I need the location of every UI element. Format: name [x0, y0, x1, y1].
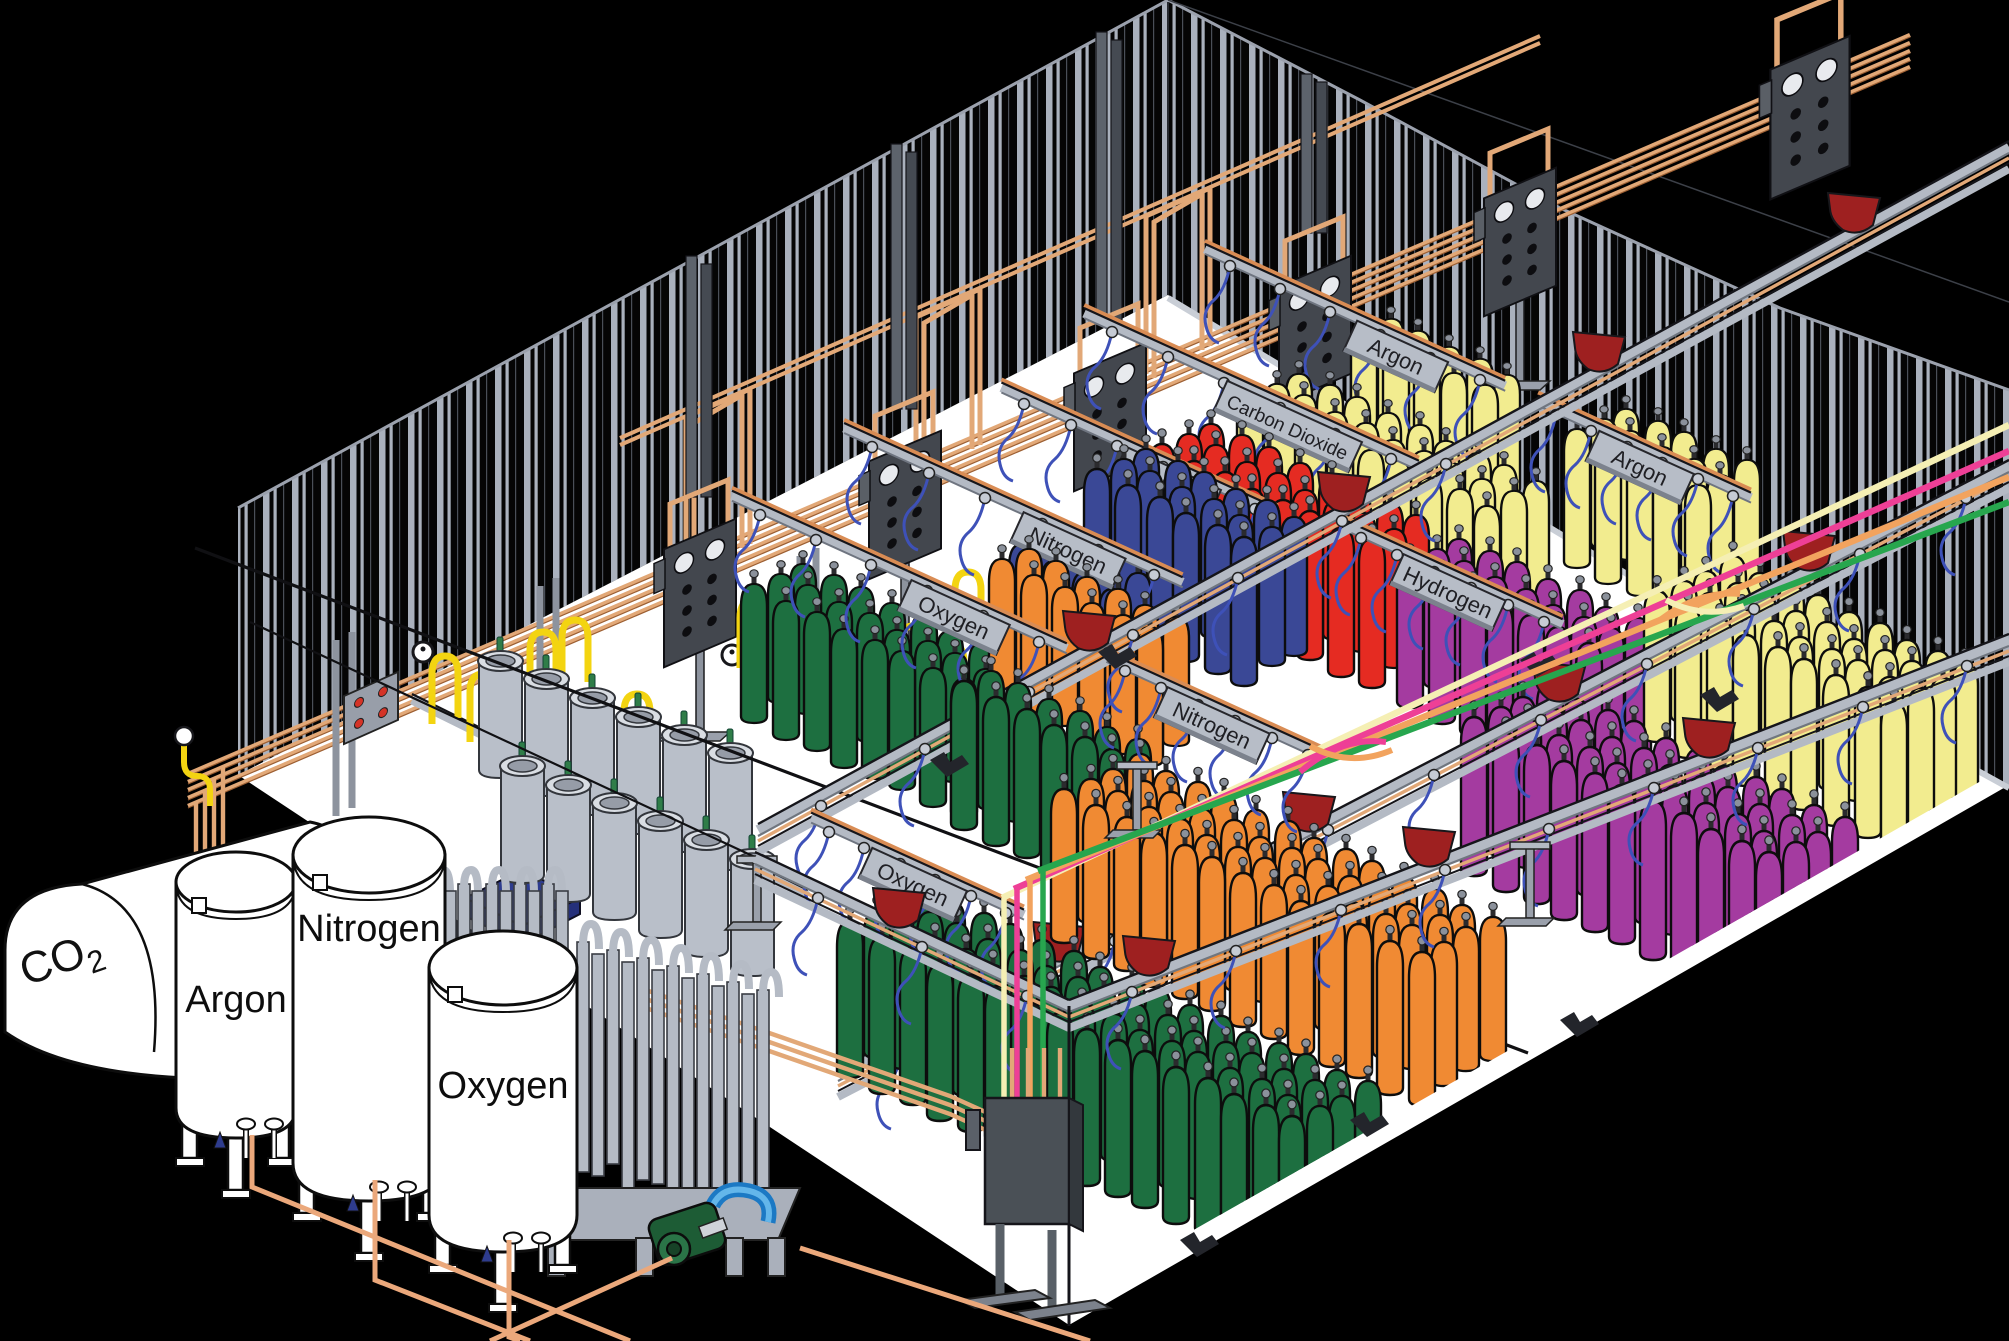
- svg-text:Argon: Argon: [185, 979, 286, 1021]
- svg-text:Nitrogen: Nitrogen: [297, 908, 441, 950]
- svg-text:Oxygen: Oxygen: [438, 1065, 569, 1107]
